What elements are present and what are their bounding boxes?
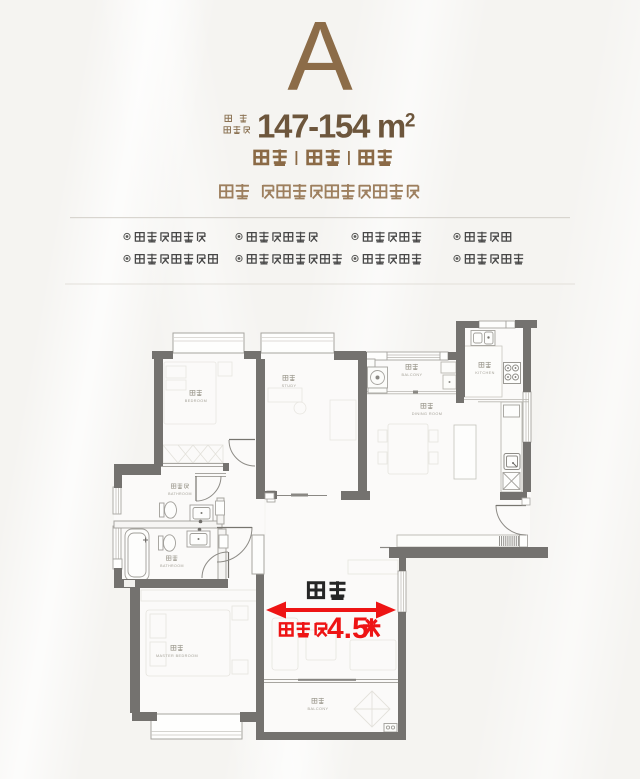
svg-text:MASTER BEDROOM: MASTER BEDROOM: [156, 654, 198, 658]
svg-text:BEDROOM: BEDROOM: [185, 399, 207, 403]
svg-text:BALCONY: BALCONY: [308, 707, 329, 711]
svg-text:DINING ROOM: DINING ROOM: [412, 412, 443, 416]
svg-text:KITCHEN: KITCHEN: [475, 371, 494, 375]
svg-text:BATHROOM: BATHROOM: [168, 492, 192, 496]
svg-text:4.5: 4.5: [327, 612, 369, 645]
svg-text:147-154 m2: 147-154 m2: [257, 108, 415, 145]
svg-text:A: A: [287, 1, 353, 111]
svg-text:STUDY: STUDY: [282, 384, 297, 388]
svg-text:BATHROOM: BATHROOM: [160, 564, 184, 568]
svg-text:BALCONY: BALCONY: [402, 373, 423, 377]
